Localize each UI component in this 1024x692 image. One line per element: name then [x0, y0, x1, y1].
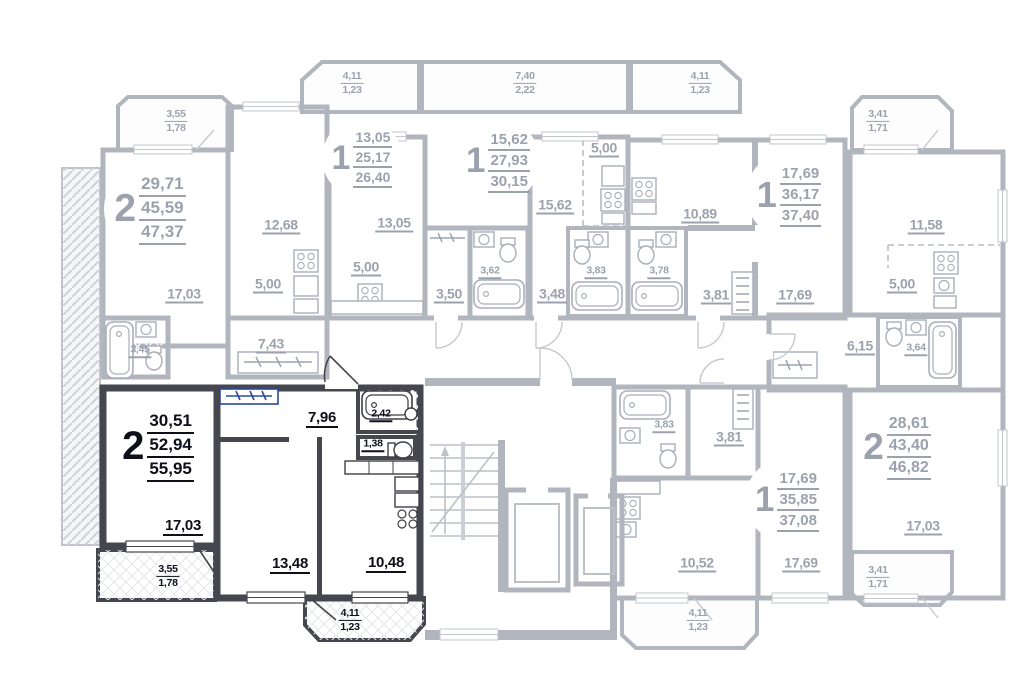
room-count: 1 — [757, 174, 777, 216]
area-value: 43,40 — [887, 436, 931, 458]
room-area-label: 6,15 — [845, 339, 875, 356]
area-value: 30,15 — [488, 172, 530, 193]
area-value: 46,82 — [887, 458, 931, 480]
area-value: 13,05 — [353, 128, 392, 148]
room-area-label: 5,00 — [253, 277, 283, 294]
room-area-label: 17,03 — [904, 519, 942, 536]
room-area-label: 3,50 — [434, 287, 464, 304]
area-value: 25,17 — [353, 148, 392, 168]
room-area-label: 2,42 — [369, 408, 392, 422]
stairs — [430, 442, 498, 540]
balcony-area-label: 4,111,23 — [339, 607, 362, 633]
room-count: 2 — [122, 424, 144, 469]
area-value: 15,62 — [488, 130, 530, 151]
room-area-label: 3,64 — [904, 342, 927, 356]
apartment-badge-apartment-bottom-middle[interactable]: 117,6935,8537,08 — [745, 458, 829, 542]
wardrobe-icon — [220, 389, 278, 404]
wardrobe-icon — [733, 389, 753, 429]
room-area-label: 3,81 — [714, 430, 744, 447]
room-count: 1 — [466, 141, 485, 181]
room-area-label: 3,78 — [647, 265, 670, 279]
room-area-label: 3,83 — [652, 419, 675, 433]
balcony-area-label: 3,551,78 — [156, 563, 179, 589]
room-area-label: 17,69 — [776, 288, 814, 305]
area-value: 26,40 — [353, 168, 392, 188]
apartment-badge-apartment-top-d[interactable]: 117,6936,1737,40 — [746, 152, 832, 238]
area-value: 37,08 — [777, 511, 819, 532]
room-area-label: 13,48 — [270, 556, 310, 574]
room-area-label: 5,00 — [351, 260, 381, 277]
area-value: 17,69 — [777, 469, 819, 490]
room-area-label: 3,83 — [584, 265, 607, 279]
area-value: 17,69 — [780, 164, 822, 185]
area-value: 37,40 — [780, 206, 822, 227]
floor-plan: 17,0312,685,007,433,4513,055,003,503,621… — [0, 0, 1024, 692]
room-area-label: 7,43 — [256, 337, 286, 354]
balcony-area-label: 4,111,23 — [689, 70, 712, 96]
apartment-badge-apartment-top-left[interactable]: 229,7145,5947,37 — [104, 163, 196, 255]
room-area-label: 10,52 — [678, 556, 716, 573]
room-area-label: 3,62 — [478, 265, 501, 279]
room-area-label: 12,68 — [262, 218, 300, 235]
wardrobe-icon — [732, 272, 753, 314]
room-area-label: 7,96 — [306, 410, 338, 428]
balcony-area-label: 3,411,71 — [866, 108, 889, 134]
room-count: 1 — [755, 480, 774, 520]
elevator-large — [506, 486, 568, 590]
area-value: 27,93 — [488, 151, 530, 172]
room-area-label: 13,05 — [375, 216, 413, 233]
room-area-label: 17,03 — [165, 287, 203, 304]
balcony-area-label: 3,551,78 — [164, 108, 187, 134]
balcony-area-label: 7,402,22 — [513, 70, 536, 96]
area-value: 55,95 — [147, 458, 194, 482]
room-area-label: 5,00 — [887, 277, 917, 294]
area-value: 35,85 — [777, 490, 819, 511]
wardrobe-icon — [238, 352, 318, 373]
section-wall-hatch — [62, 168, 100, 545]
apartment-badge-apartment-right[interactable]: 228,6143,4046,82 — [853, 403, 941, 491]
room-area-label: 3,48 — [537, 287, 567, 304]
balcony-area-label: 4,111,23 — [341, 70, 364, 96]
room-area-label: 17,69 — [782, 556, 820, 573]
area-value: 29,71 — [139, 173, 186, 197]
area-value: 52,94 — [147, 434, 194, 458]
area-value: 45,59 — [139, 197, 186, 221]
area-value: 28,61 — [887, 414, 931, 436]
room-area-label: 5,00 — [589, 141, 619, 158]
area-value: 30,51 — [147, 410, 194, 434]
room-area-label: 1,38 — [361, 438, 384, 452]
room-area-label: 15,62 — [536, 198, 574, 215]
apartment-badge-apartment-top-b[interactable]: 113,0525,1726,40 — [322, 118, 402, 198]
room-area-label: 10,48 — [366, 555, 406, 573]
balcony-area-label: 4,111,23 — [687, 607, 710, 633]
room-area-label: 17,03 — [163, 518, 203, 536]
apartment-badge-apartment-highlighted[interactable]: 230,5152,9455,95 — [110, 398, 206, 494]
room-count: 2 — [863, 426, 884, 468]
apartment-top-c[interactable] — [530, 132, 628, 348]
area-value: 47,37 — [139, 221, 186, 245]
room-count: 1 — [332, 139, 351, 178]
room-area-label: 3,45 — [128, 344, 151, 358]
wardrobe-icon — [773, 352, 817, 378]
room-area-label: 11,58 — [908, 218, 945, 235]
area-value: 36,17 — [780, 185, 822, 206]
balcony-area-label: 3,411,71 — [866, 564, 889, 590]
apartment-badge-apartment-top-c[interactable]: 115,6227,9330,15 — [456, 119, 540, 203]
room-count: 2 — [114, 187, 136, 231]
room-area-label: 10,89 — [681, 207, 719, 224]
stair-core — [425, 348, 622, 640]
room-area-label: 3,81 — [701, 288, 731, 305]
